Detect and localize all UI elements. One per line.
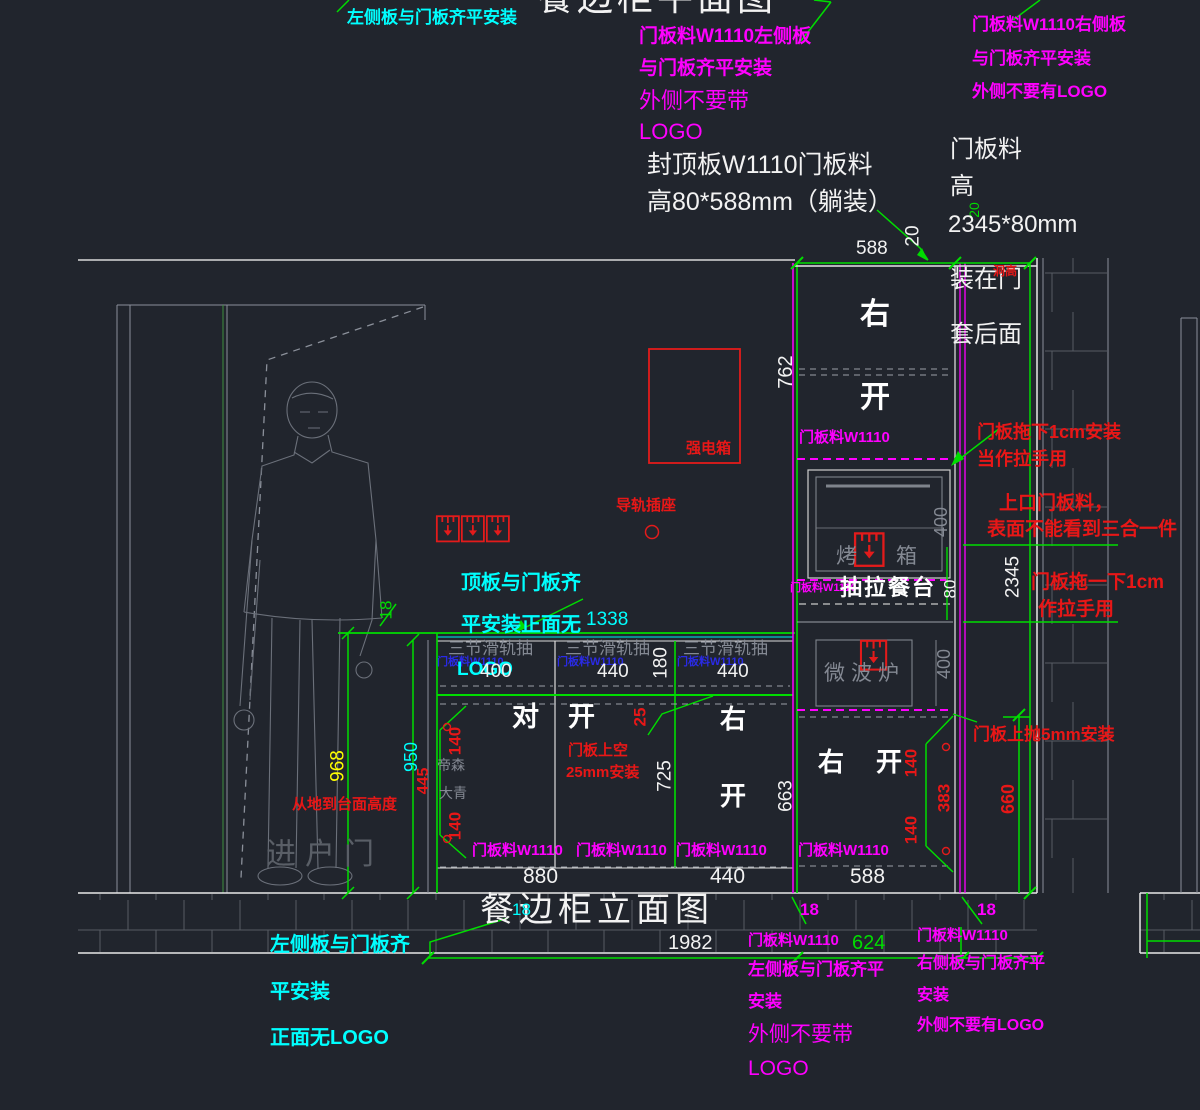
- dim-25: 25: [632, 708, 649, 727]
- label-panel-d2: 门板料W1110: [576, 843, 667, 858]
- dim-383: 383: [936, 784, 953, 812]
- dim-2345: 2345: [1004, 556, 1023, 598]
- dim-180: 180: [652, 647, 671, 679]
- note-cyan-top-left: 左侧板与门板齐平安装: [347, 9, 517, 26]
- dim-440-drawer1: 440: [597, 662, 629, 681]
- label-mid-right: 右: [720, 706, 746, 732]
- label-panel-d3: 门板料W1110: [676, 843, 767, 858]
- note-topboard-1: 顶板与门板齐: [461, 573, 581, 593]
- dim-440-drawer2: 440: [717, 662, 749, 681]
- dim-18-right: 18: [977, 901, 996, 918]
- dim-18-mid: 18: [800, 901, 819, 918]
- note-magenta-tr-3: 外侧不要有LOGO: [972, 83, 1107, 100]
- label-strong-box: 强电箱: [686, 441, 731, 456]
- label-oven-right: 箱: [896, 546, 917, 567]
- note-magenta-br-4: 外侧不要有LOGO: [917, 1018, 1044, 1034]
- note-cyan-bl-1: 左侧板与门板齐: [270, 935, 410, 955]
- note-magenta-tl-2: 与门板齐平安装: [639, 59, 772, 78]
- dim-80: 80: [942, 580, 959, 599]
- dim-20-top: 20: [904, 225, 923, 246]
- label-slide-1: 三节滑轨抽: [448, 640, 533, 657]
- dim-140-a: 140: [447, 727, 464, 755]
- note-magenta-tl-3: 外侧不要带: [639, 90, 749, 112]
- dim-1338: 1338: [586, 610, 628, 629]
- label-panel-d1: 门板料W1110: [472, 843, 563, 858]
- dim-660: 660: [999, 784, 1017, 814]
- note-magenta-bm-2: 左侧板与门板齐平: [748, 961, 884, 978]
- label-top-door-right: 右: [860, 300, 890, 330]
- note-doormat-3: 2345*80mm: [948, 213, 1077, 237]
- note-dragonce-2: 作拉手用: [1038, 600, 1114, 619]
- label-slide-2: 三节滑轨抽: [565, 640, 650, 657]
- note-magenta-br-3: 安装: [917, 988, 949, 1004]
- label-top-door-open: 开: [860, 383, 890, 413]
- note-magenta-tl-4: LOGO: [639, 121, 703, 143]
- label-pair-open: 开: [568, 704, 595, 731]
- socket-icons: [437, 516, 509, 541]
- note-cyan-bl-3: 正面无LOGO: [270, 1028, 389, 1048]
- dim-18-left: 18: [512, 901, 531, 918]
- dim-445: 445: [416, 768, 432, 795]
- note-topboard-2: 平安装正面无: [461, 615, 581, 635]
- note-hole-height: 洞高: [993, 265, 1017, 277]
- label-microwave: 微波炉: [824, 663, 905, 684]
- dim-725: 725: [656, 760, 675, 792]
- note-floor-height: 从地到台面高度: [292, 797, 397, 812]
- dim-624: 624: [852, 933, 885, 953]
- note-magenta-tr-1: 门板料W1110右侧板: [972, 16, 1126, 33]
- note-dragdown-2: 当作拉手用: [977, 450, 1067, 468]
- dim-588-top: 588: [856, 239, 888, 258]
- label-door-panel-top: 门板料W1110: [799, 430, 890, 445]
- note-doorgap-2: 25mm安装: [566, 765, 639, 780]
- note-capboard-2: 高80*588mm（躺装）: [647, 190, 893, 215]
- note-magenta-tr-2: 与门板齐平安装: [972, 50, 1091, 67]
- dim-880: 880: [523, 866, 558, 887]
- label-entry-door: 进户门: [266, 840, 383, 870]
- note-doormat-1: 门板料: [950, 138, 1022, 162]
- dim-140-c: 140: [903, 749, 920, 777]
- dim-1982: 1982: [668, 933, 713, 953]
- dim-400-micro: 400: [935, 649, 953, 679]
- note-doormat-5: 套后面: [950, 323, 1022, 347]
- note-door-up: 门板上抛5mm安装: [973, 726, 1115, 743]
- plan-title-clipped: 餐边柜平面图: [537, 0, 777, 16]
- label-rail-socket: 导轨插座: [616, 498, 676, 513]
- dim-968: 968: [329, 750, 348, 782]
- dim-440-bottom: 440: [710, 866, 745, 887]
- note-topmouth-2: 表面不能看到三合一件: [987, 520, 1177, 539]
- label-panel-d4: 门板料W1110: [798, 843, 889, 858]
- rail-socket-circle: [646, 526, 659, 539]
- note-dragdown-1: 门板拖下1cm安装: [977, 423, 1121, 441]
- note-magenta-bm-5: LOGO: [748, 1058, 809, 1079]
- label-slide-3: 三节滑轨抽: [683, 640, 768, 657]
- dim-18-counter: 18: [378, 601, 395, 620]
- note-capboard-1: 封顶板W1110门板料: [647, 153, 873, 178]
- note-doorgap-1: 门板上空: [568, 743, 628, 758]
- note-magenta-br-2: 右侧板与门板齐平: [917, 956, 1045, 972]
- dim-140-d: 140: [903, 816, 920, 844]
- note-cyan-bl-2: 平安装: [270, 982, 330, 1002]
- dim-762: 762: [776, 355, 796, 388]
- right-frame-fragment: [1181, 318, 1197, 893]
- note-magenta-bm-4: 外侧不要带: [748, 1024, 853, 1045]
- label-mid-open: 开: [720, 783, 746, 809]
- note-dragonce-1: 门板拖一下1cm: [1031, 573, 1164, 592]
- note-magenta-bm-3: 安装: [748, 993, 782, 1010]
- note-magenta-bm-1: 门板料W1110: [748, 933, 839, 948]
- label-pair-left: 对: [512, 704, 539, 731]
- dim-140-b: 140: [447, 812, 464, 840]
- label-brand-top: 帝森: [437, 758, 465, 772]
- label-brand-bottom: 大青: [439, 786, 467, 800]
- note-magenta-tl-1: 门板料W1110左侧板: [639, 27, 811, 46]
- note-topmouth-1: 上口门板料，: [999, 494, 1113, 513]
- dim-663: 663: [777, 780, 796, 812]
- label-bot-open: 开: [876, 749, 902, 775]
- label-bot-right: 右: [818, 749, 844, 775]
- dim-400-oven: 400: [932, 507, 950, 537]
- arrowhead-capboard: [917, 248, 928, 261]
- dim-588-bottom: 588: [850, 866, 885, 887]
- drawing-canvas[interactable]: 餐边柜平面图 左侧板与门板齐平安装 门板料W1110左侧板 与门板齐平安装 外侧…: [0, 0, 1200, 1110]
- label-pull-table: 抽拉餐台: [840, 577, 936, 599]
- note-magenta-br-1: 门板料W1110: [917, 928, 1008, 943]
- dim-400-drawer: 400: [480, 662, 512, 681]
- note-doormat-2: 高: [950, 175, 974, 199]
- label-oven-left: 烤: [836, 546, 857, 567]
